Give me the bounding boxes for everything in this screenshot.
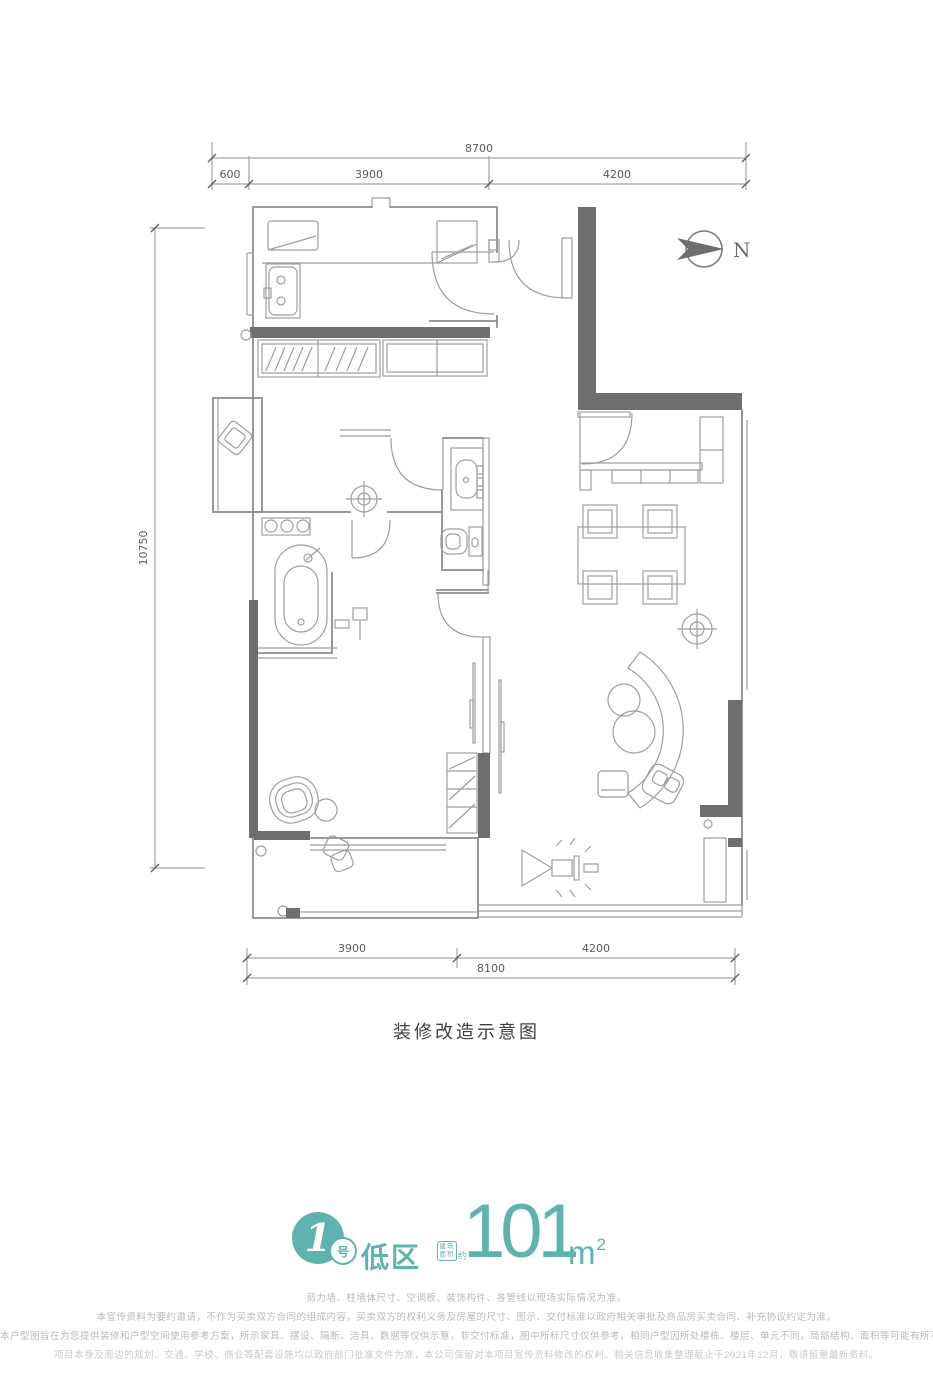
dim-top-seg2: 3900 [355, 168, 383, 181]
sofa [580, 463, 702, 470]
side-table [315, 799, 337, 821]
armchair [264, 772, 323, 829]
plant [322, 834, 355, 873]
bedroom [264, 753, 477, 873]
kitchen-counter-tray [268, 221, 318, 250]
fridge [437, 221, 477, 263]
north-label: N [733, 238, 751, 262]
corner-cabinet [704, 838, 726, 902]
unit-number: 1 [305, 1215, 331, 1260]
north-indicator: N [677, 231, 751, 267]
area-approx-label: 约 [458, 1249, 467, 1262]
dim-bottom-seg2: 4200 [582, 942, 610, 955]
round-table-large [613, 711, 655, 753]
walls [213, 198, 747, 918]
area-label-line2: 面积 [440, 1251, 455, 1259]
floor-plan-page: 8700 600 3900 4200 10750 3900 4200 8100 [0, 0, 933, 1400]
dim-top-seg3: 4200 [603, 168, 631, 181]
disclaimer-line: 项目本身及周边的规划、交通、学校、商业等配套设施均以政府部门批准文件为准，本公司… [0, 1346, 933, 1365]
disclaimer-line: 剪力墙、柱墙体尺寸、空调板、装饰构件、各管线以现场实际情况为准。 [0, 1289, 933, 1308]
floor-drain-living [677, 609, 717, 649]
dim-top-total: 8700 [465, 142, 493, 155]
disclaimer-line: 本户型图旨在为您提供装修和户型空间使用参考方案，所示家具、摆设、隔断、洁具、数据… [0, 1327, 933, 1346]
area-unit-m: m [568, 1234, 596, 1271]
unit-number-suffix: 号 [329, 1237, 357, 1265]
disclaimer-line: 本宣传资料为要约邀请，不作为买卖双方合同的组成内容，买卖双方的权利义务及房屋的尺… [0, 1308, 933, 1327]
zone-label: 低区 [361, 1236, 421, 1276]
dim-bottom-seg1: 3900 [338, 942, 366, 955]
dim-top-seg1: 600 [220, 168, 241, 181]
water-heater [353, 608, 367, 620]
dining-set [578, 505, 685, 604]
dim-left-total: 10750 [137, 531, 150, 566]
projector [522, 838, 598, 897]
living-dining [470, 417, 728, 902]
area-label-line1: 建筑 [440, 1243, 455, 1251]
bathtub [275, 545, 327, 645]
plan-caption: 装修改造示意图 [0, 1018, 933, 1044]
curved-sofa [628, 652, 683, 808]
area-unit-sup: 2 [597, 1235, 606, 1254]
unit-number-badge: 1 [292, 1212, 344, 1264]
bathroom-1 [441, 448, 483, 556]
dimension-bottom: 3900 4200 8100 [243, 942, 739, 985]
dimension-left: 10750 [137, 224, 205, 872]
area-label-box: 建筑 面积 [437, 1241, 457, 1261]
balcony-upper [217, 420, 253, 456]
dimension-top: 8700 600 3900 4200 [208, 142, 750, 190]
closet-with-hangers [258, 340, 380, 377]
disclaimer: 剪力墙、柱墙体尺寸、空调板、装饰构件、各管线以现场实际情况为准。 本宣传资料为要… [0, 1289, 933, 1365]
kitchen-furniture [262, 221, 477, 318]
bathroom-2 [262, 481, 382, 645]
stool [598, 771, 628, 797]
closet-plain [383, 340, 487, 376]
area-value: 101 [463, 1196, 575, 1268]
dim-bottom-total: 8100 [477, 962, 505, 975]
wardrobe [447, 753, 477, 833]
toilet [441, 529, 467, 554]
floor-plan-drawing: 8700 600 3900 4200 10750 3900 4200 8100 [0, 0, 933, 1010]
area-unit: m2 [568, 1234, 606, 1272]
floor-drain [346, 481, 382, 517]
hall-closets [258, 340, 487, 377]
balcony-planter [217, 420, 253, 456]
